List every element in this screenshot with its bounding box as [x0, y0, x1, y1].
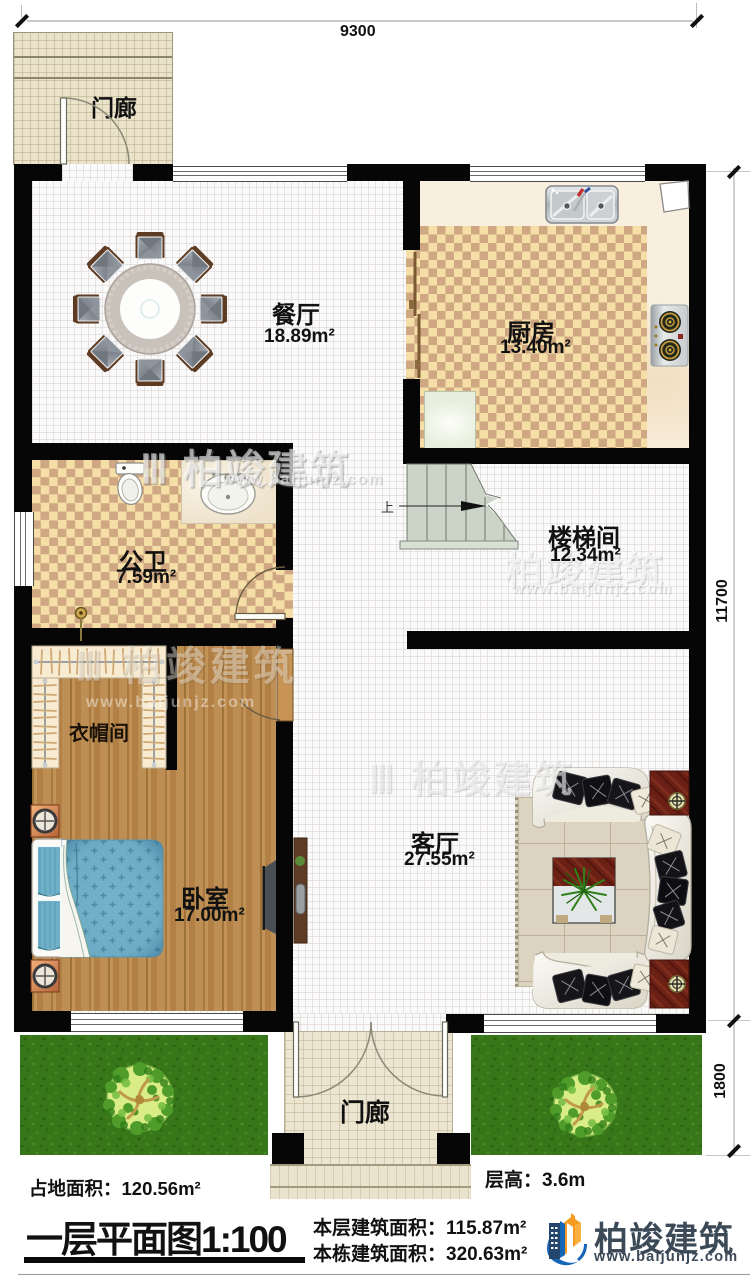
svg-text:上: 上	[381, 500, 394, 515]
